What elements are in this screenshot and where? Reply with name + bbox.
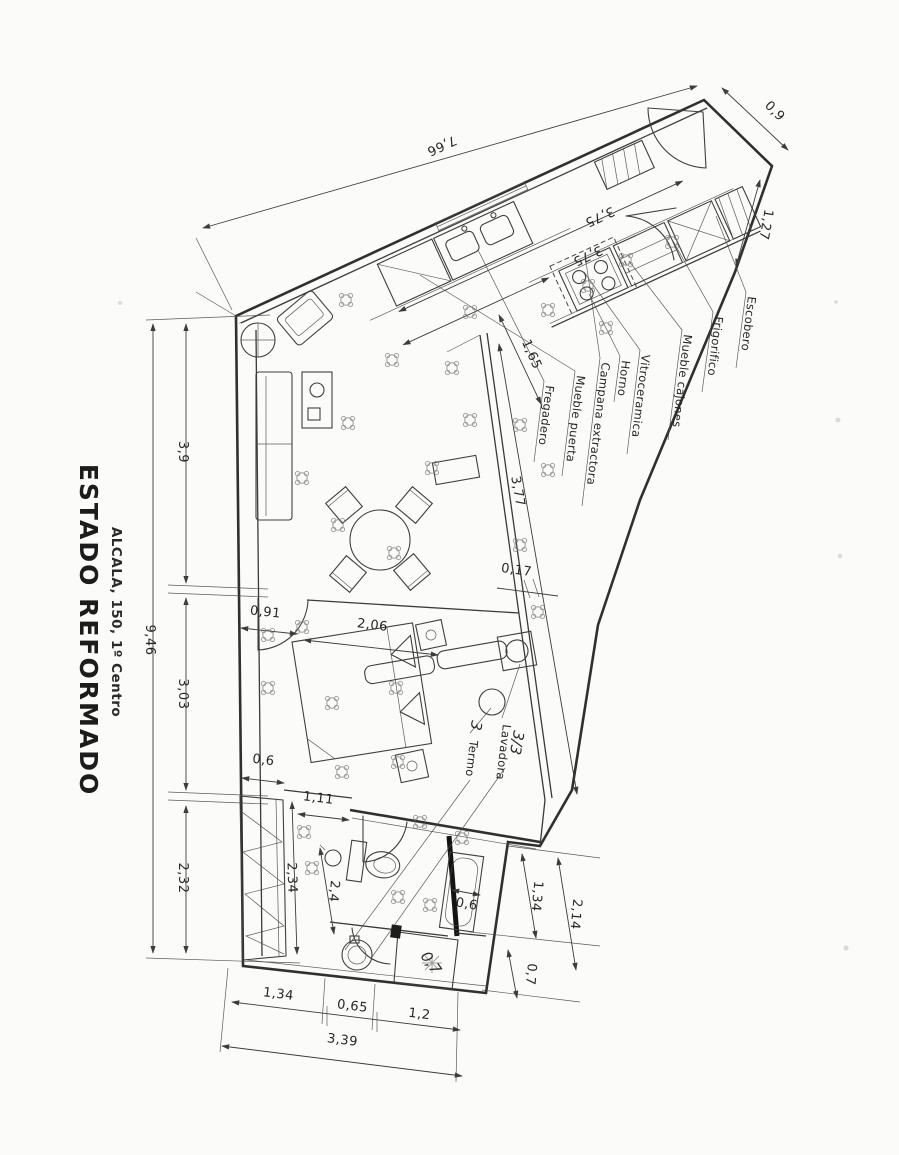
dim-left-bottom: 2,32 [175, 863, 190, 894]
utility-labels: Termo Lavadora 3/3 3 0,7 [417, 664, 528, 978]
plan-title: ESTADO REFORMADO [74, 464, 103, 796]
dim-bath-width: 2,4 [325, 880, 342, 903]
threshold [390, 924, 402, 938]
armchair [276, 289, 334, 346]
balcony-table [241, 323, 275, 357]
annotation-count: 3 [466, 719, 485, 732]
dim-bottom-a: 1,34 [262, 985, 295, 1004]
dim-bedroom-door: 0,91 [249, 603, 281, 621]
nightstand-1 [416, 620, 447, 651]
dim-left-top: 3,9 [175, 441, 190, 463]
label-horno: Horno [615, 360, 633, 397]
termo-unit [479, 689, 505, 715]
dim-bottom-b: 0,65 [336, 997, 369, 1016]
annotation-shower: 0,7 [417, 948, 446, 978]
dim-left-total: 9,46 [142, 625, 157, 656]
floorplan-scan-page: ESTADO REFORMADO ALCALA, 150, 1º Centro [0, 0, 899, 1155]
plan-subtitle: ALCALA, 150, 1º Centro [108, 527, 124, 717]
toilet [346, 840, 402, 887]
dining-set [326, 487, 433, 593]
bath-right-dimensions: 1,34 2,14 0,7 [470, 846, 600, 1002]
washbasin [342, 936, 372, 970]
dim-bed-width: 2,06 [356, 616, 389, 635]
label-escobero: Escobero [738, 296, 759, 352]
bed [292, 623, 432, 763]
label-termo: Termo [463, 739, 481, 778]
living-room-furniture [241, 289, 480, 592]
outer-walls [196, 100, 772, 993]
dim-bath-right-total: 2,14 [567, 898, 585, 930]
sideboard [432, 455, 479, 484]
utility-units [345, 631, 537, 957]
label-mueble-cajones: Mueble cajones [670, 334, 695, 429]
label-frigorifico: Frigorifico [705, 316, 726, 377]
dim-bottom-total: 3,39 [326, 1031, 359, 1050]
dim-counter-return: 1,65 [518, 337, 544, 371]
dim-wall-gap: 0,17 [500, 561, 533, 580]
label-fregadero: Fregadero [536, 385, 557, 447]
floor-plan-svg: ESTADO REFORMADO ALCALA, 150, 1º Centro [0, 0, 899, 1155]
scan-smudges [118, 300, 849, 950]
washing-machine [497, 631, 536, 670]
dim-hall-pass: 1,11 [302, 789, 335, 808]
dim-bath-right-inner: 1,34 [528, 880, 546, 912]
title-block: ESTADO REFORMADO ALCALA, 150, 1º Centro [74, 464, 124, 796]
label-mueble-puerta: Mueble puerta [563, 375, 588, 463]
dim-kitchen-a: 3,75 [582, 203, 616, 230]
dim-closet-width: 0,6 [252, 752, 276, 770]
corner-chamfer [196, 292, 236, 316]
sofa [256, 372, 292, 520]
tv-unit [302, 372, 332, 428]
left-dimensions: 9,46 3,9 3,03 2,32 [142, 315, 300, 963]
dim-top-total: 7,66 [424, 132, 458, 159]
dim-kitchen-b: 3,75 [570, 242, 604, 269]
closet-hatched [240, 796, 286, 960]
dim-tub-width: 0,6 [454, 895, 478, 914]
dim-closet-length: 2,34 [283, 862, 299, 893]
dim-bath-right-lower: 0,7 [522, 963, 539, 986]
dim-left-mid: 3,03 [175, 679, 190, 710]
dim-escobero-depth: 1,27 [755, 208, 775, 241]
dim-entry-width: 0,9 [761, 98, 787, 124]
dim-bottom-c: 1,2 [408, 1006, 432, 1024]
bidet [320, 845, 341, 866]
